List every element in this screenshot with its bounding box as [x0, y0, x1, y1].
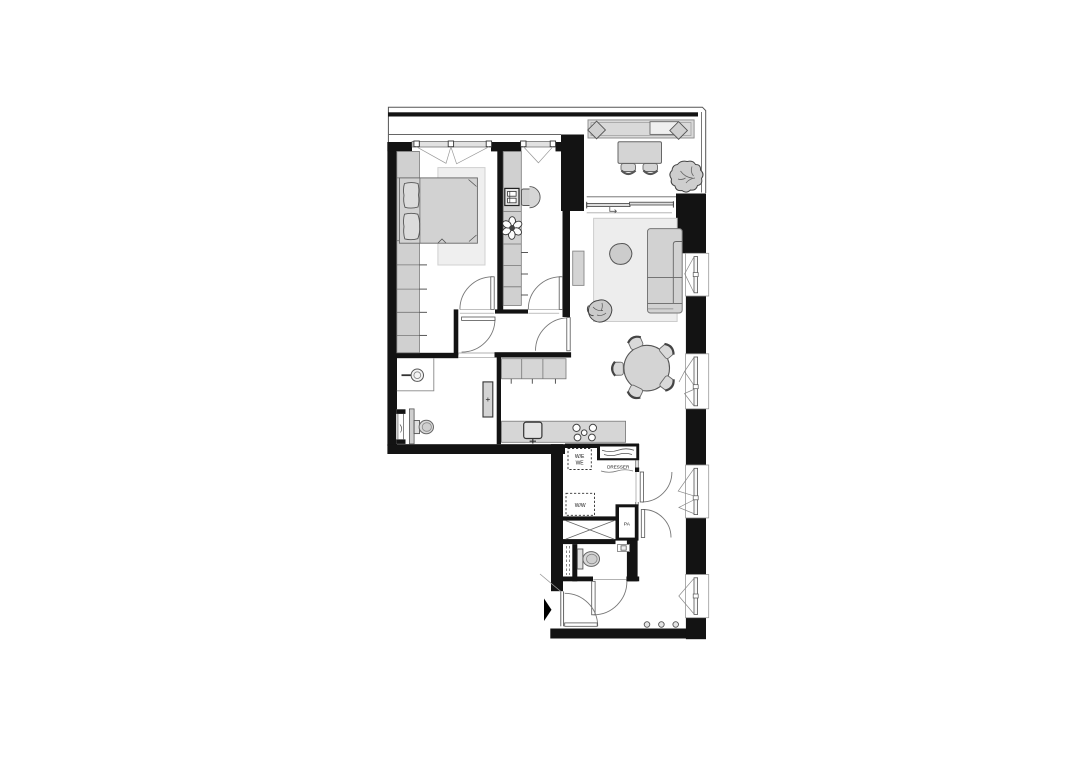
svg-text:PA: PA — [624, 522, 631, 528]
svg-text:WE: WE — [576, 461, 585, 467]
svg-text:W/E: W/E — [575, 454, 585, 460]
svg-text:DRESSER: DRESSER — [607, 464, 630, 469]
svg-text:W/W: W/W — [575, 503, 586, 509]
